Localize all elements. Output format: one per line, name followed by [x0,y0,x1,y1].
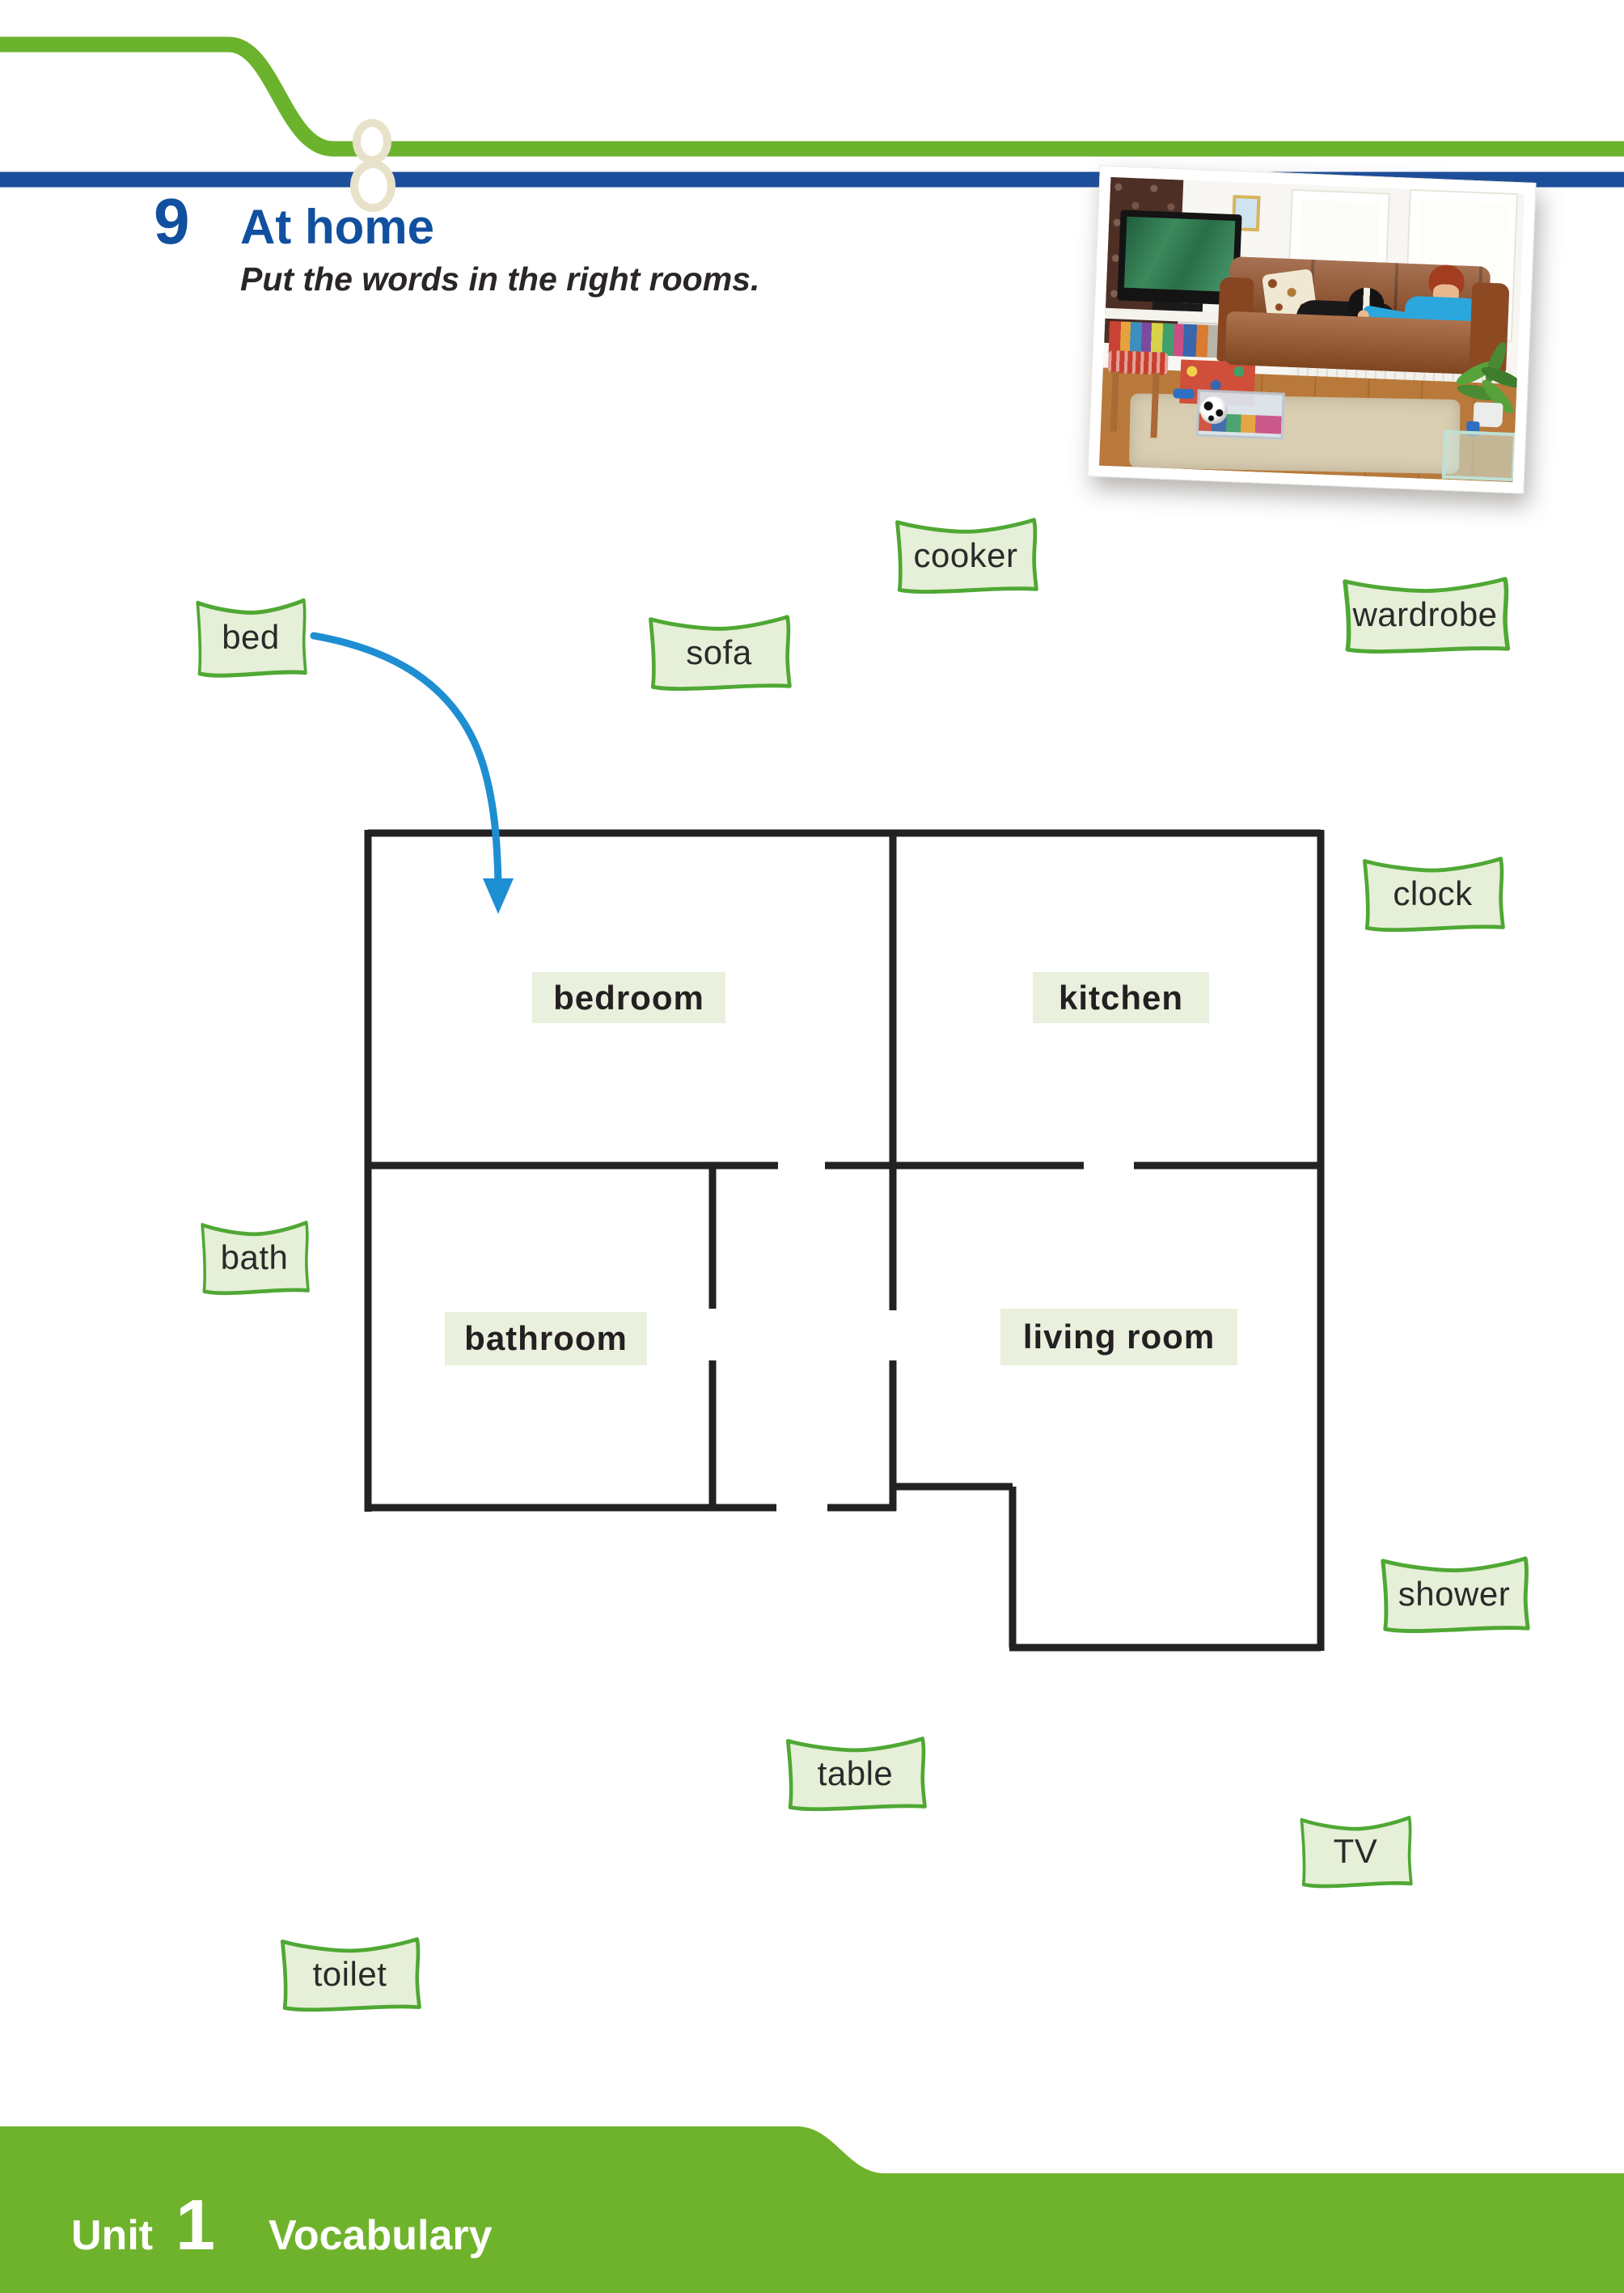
word-box-bath[interactable]: bath [197,1215,312,1300]
word-box-clock[interactable]: clock [1357,851,1508,937]
exercise-number: 9 [154,184,190,259]
word-label: bath [221,1238,289,1277]
word-label: table [818,1754,894,1793]
example-arrow-bed-to-bedroom [314,636,514,914]
figure-eight-ornament-icon [354,123,391,208]
floor-plan-walls [365,830,1321,1651]
workbook-page: 9 At home Put the words in the right roo… [0,0,1624,2293]
rug [1129,393,1461,474]
word-label: cooker [913,536,1017,575]
living-room-scene [1099,177,1525,482]
word-label: TV [1334,1832,1378,1871]
room-label-kitchen: kitchen [1033,972,1209,1023]
word-box-tv[interactable]: TV [1296,1810,1415,1893]
footer-section-label: Vocabulary [269,2211,492,2260]
word-box-table[interactable]: table [780,1731,930,1816]
word-label: wardrobe [1352,595,1497,634]
header-green-line [0,44,1624,149]
exercise-instruction: Put the words in the right rooms. [240,260,759,298]
word-label: shower [1398,1575,1510,1614]
glass-table [1442,430,1516,482]
word-box-cooker[interactable]: cooker [890,512,1042,599]
room-label-bedroom: bedroom [532,972,725,1023]
word-box-wardrobe[interactable]: wardrobe [1336,571,1514,658]
room-label-bathroom: bathroom [445,1312,647,1365]
word-label: bed [222,618,280,657]
living-room-photo [1087,165,1536,493]
tv-screen [1124,217,1235,292]
dog-bowl [1173,388,1194,399]
word-box-toilet[interactable]: toilet [275,1931,425,2016]
word-label: sofa [686,633,751,672]
word-box-bed[interactable]: bed [192,592,310,683]
exercise-title: At home [240,199,434,255]
house-plant [1450,349,1523,433]
word-box-shower[interactable]: shower [1375,1551,1533,1638]
word-label: toilet [313,1955,387,1994]
footer-unit-number: 1 [176,2184,215,2266]
footer-unit-label: Unit [71,2211,153,2260]
room-label-living-room: living room [1000,1309,1237,1365]
word-label: clock [1393,874,1472,913]
footer-text: Unit 1 Vocabulary [71,2184,493,2266]
word-box-sofa[interactable]: sofa [643,609,795,696]
